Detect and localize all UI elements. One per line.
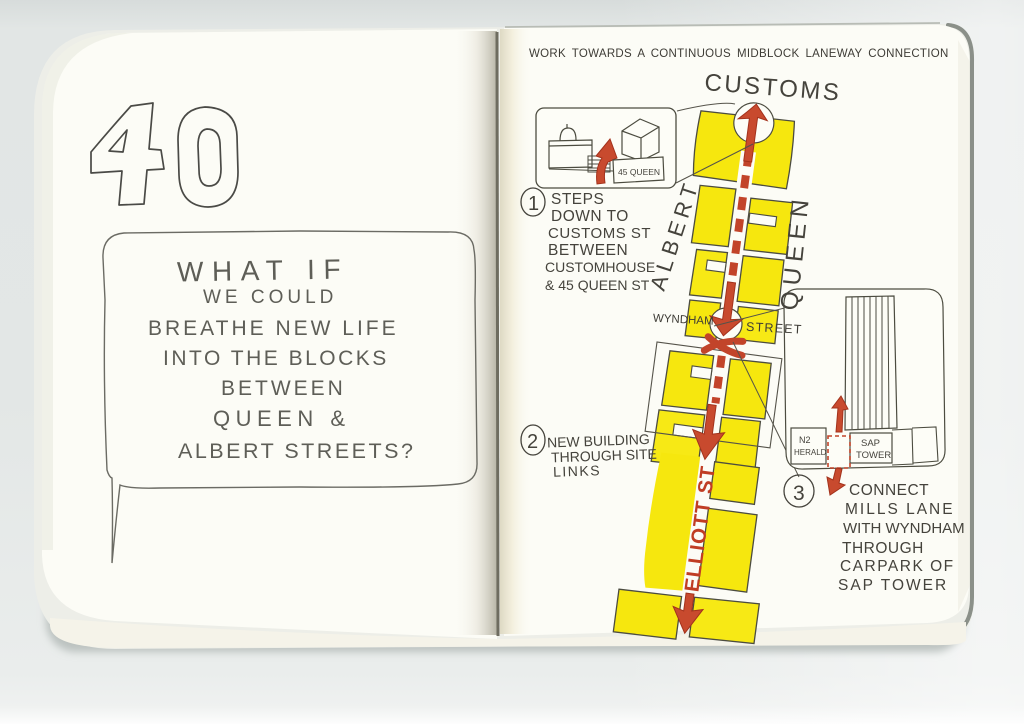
svg-text:BETWEEN: BETWEEN: [221, 377, 346, 400]
svg-text:WITH WYNDHAM: WITH WYNDHAM: [843, 520, 965, 537]
svg-text:STREET: STREET: [746, 320, 803, 337]
svg-text:1: 1: [528, 193, 539, 215]
svg-text:45 QUEEN: 45 QUEEN: [618, 167, 660, 177]
svg-text:SAP TOWER: SAP TOWER: [838, 577, 948, 594]
svg-text:MILLS LANE: MILLS LANE: [845, 501, 955, 518]
svg-text:TOWER: TOWER: [856, 450, 891, 461]
svg-text:DOWN TO: DOWN TO: [551, 208, 629, 225]
svg-text:INTO THE BLOCKS: INTO THE BLOCKS: [163, 347, 389, 370]
svg-text:ALBERT STREETS?: ALBERT STREETS?: [178, 439, 415, 463]
svg-text:SAP: SAP: [861, 438, 880, 449]
svg-text:HERALD: HERALD: [794, 448, 827, 457]
svg-text:THROUGH: THROUGH: [842, 540, 924, 557]
svg-text:WORK TOWARDS A CONTINUOUS MIDB: WORK TOWARDS A CONTINUOUS MIDBLOCK LANEW…: [529, 48, 949, 60]
svg-text:BETWEEN: BETWEEN: [548, 242, 628, 259]
svg-text:CUSTOMHOUSE: CUSTOMHOUSE: [545, 259, 655, 275]
svg-text:2: 2: [527, 431, 538, 453]
svg-text:STEPS: STEPS: [551, 191, 604, 208]
svg-text:CUSTOMS ST: CUSTOMS ST: [548, 225, 651, 242]
svg-text:CONNECT: CONNECT: [849, 482, 929, 499]
svg-text:CARPARK OF: CARPARK OF: [840, 558, 955, 575]
svg-text:WE COULD: WE COULD: [203, 287, 337, 308]
svg-text:& 45 QUEEN ST: & 45 QUEEN ST: [545, 277, 650, 293]
svg-text:3: 3: [793, 482, 805, 505]
svg-text:QUEEN &: QUEEN &: [213, 406, 351, 431]
svg-text:LINKS: LINKS: [553, 462, 601, 480]
svg-text:N2: N2: [799, 435, 811, 445]
svg-text:BREATHE NEW LIFE: BREATHE NEW LIFE: [148, 317, 399, 340]
svg-text:WHAT IF: WHAT IF: [177, 253, 350, 287]
